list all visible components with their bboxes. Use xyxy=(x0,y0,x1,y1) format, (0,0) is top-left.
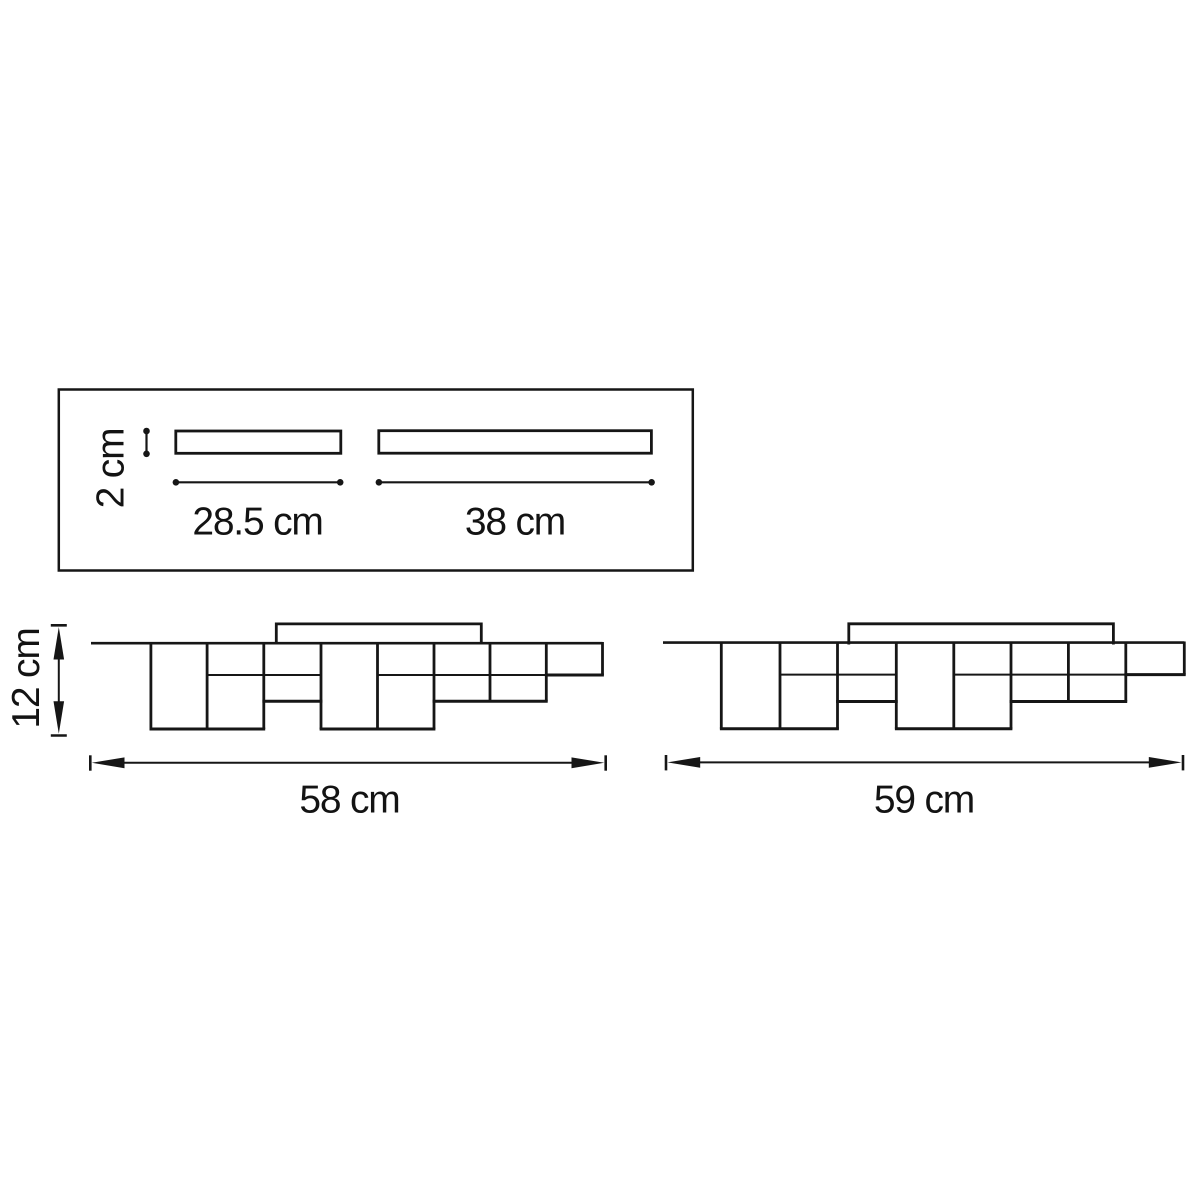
svg-text:58 cm: 58 cm xyxy=(299,779,399,822)
svg-text:59 cm: 59 cm xyxy=(874,779,974,822)
svg-text:28.5 cm: 28.5 cm xyxy=(192,501,322,544)
svg-text:12 cm: 12 cm xyxy=(5,628,48,728)
svg-text:2 cm: 2 cm xyxy=(90,429,133,509)
svg-text:38 cm: 38 cm xyxy=(465,501,565,544)
